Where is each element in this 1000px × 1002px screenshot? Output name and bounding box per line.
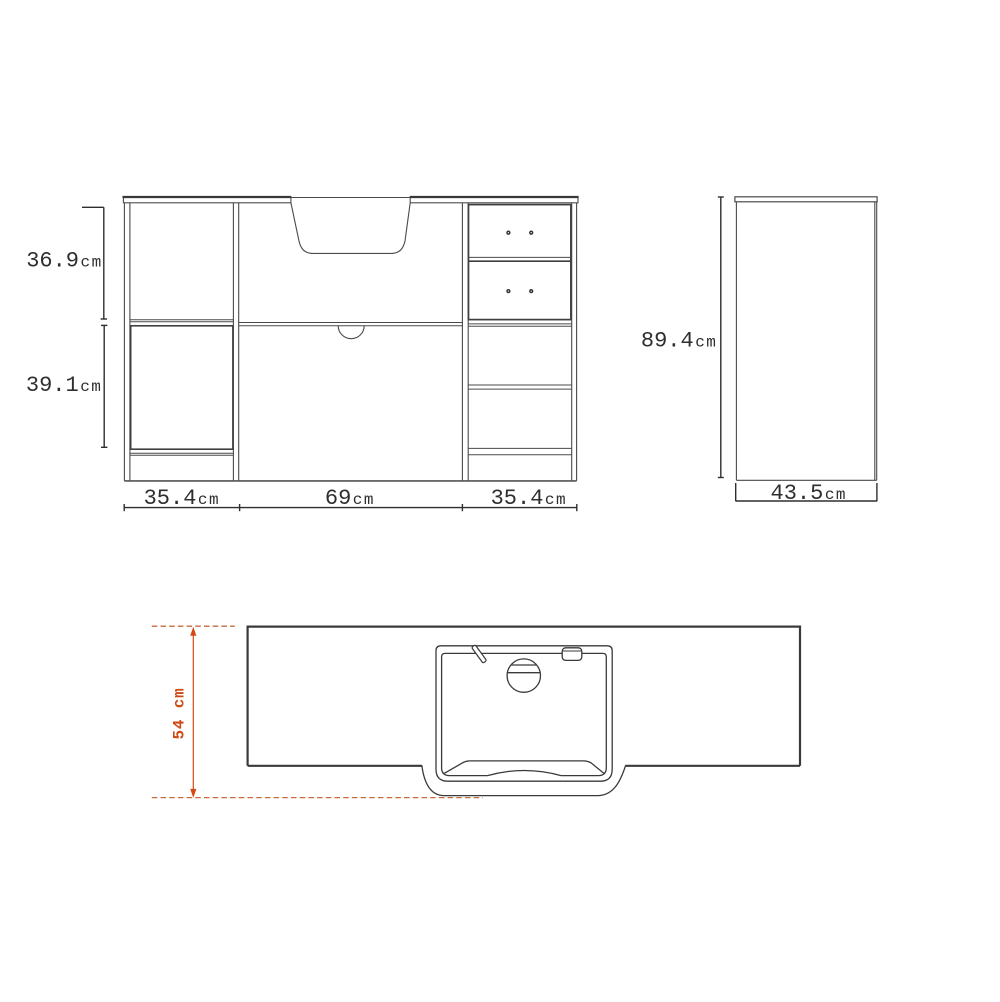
svg-text:35.4cm: 35.4cm xyxy=(491,486,568,511)
svg-text:89.4cm: 89.4cm xyxy=(641,329,718,354)
svg-text:69cm: 69cm xyxy=(325,486,375,511)
svg-text:54 cm: 54 cm xyxy=(171,687,189,739)
svg-text:35.4cm: 35.4cm xyxy=(144,486,221,511)
svg-text:39.1cm: 39.1cm xyxy=(26,373,103,398)
svg-text:36.9cm: 36.9cm xyxy=(26,249,103,274)
svg-text:43.5cm: 43.5cm xyxy=(771,481,848,506)
